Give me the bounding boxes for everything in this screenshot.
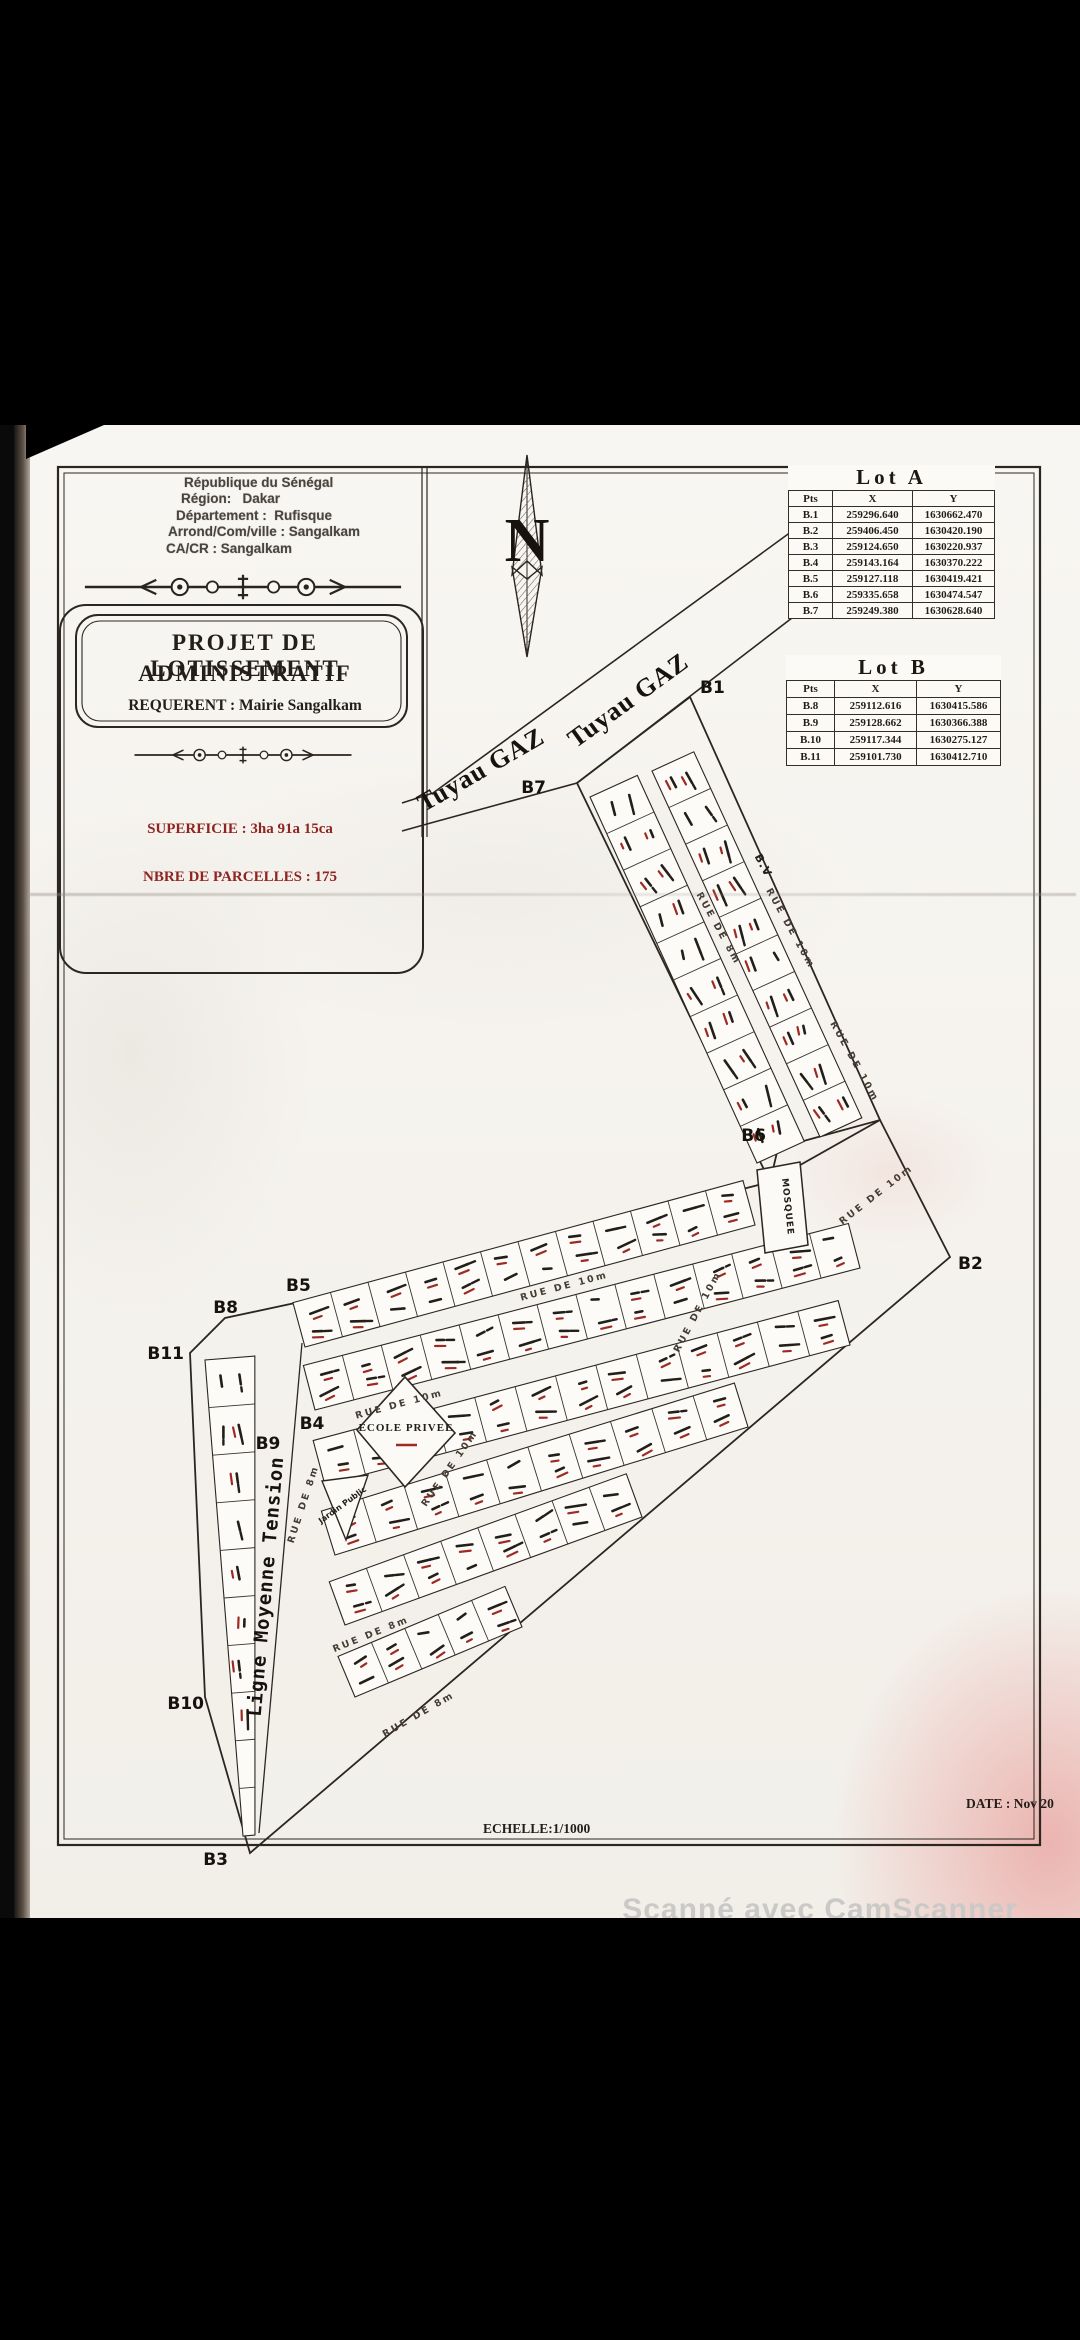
coordinate-cell: 1630220.937 <box>913 539 995 555</box>
coordinate-cell: 259124.650 <box>833 539 913 555</box>
gas-line-label-upper: Tuyau GAZ <box>562 647 694 754</box>
cacr-value: Sangalkam <box>221 541 292 556</box>
gas-line-label-lower: Tuyau GAZ <box>412 722 549 818</box>
table-row: B.6259335.6581630474.547 <box>789 587 995 603</box>
lot-a-header-pts: Pts <box>789 491 833 507</box>
coordinate-cell: 259117.344 <box>835 732 917 749</box>
admin-line-departement: Département : Rufisque <box>166 508 466 524</box>
letterbox-top <box>0 0 1080 425</box>
coordinate-cell: 1630275.127 <box>917 732 1001 749</box>
table-row: B.9259128.6621630366.388 <box>787 715 1001 732</box>
lot-b-header-pts: Pts <box>787 681 835 698</box>
coordinate-cell: B.4 <box>789 555 833 571</box>
lot-a-title: Lot A <box>788 465 995 490</box>
coordinate-cell: B.6 <box>789 587 833 603</box>
coordinate-cell: B.1 <box>789 507 833 523</box>
coordinate-cell: 259101.730 <box>835 749 917 766</box>
table-row: B.2259406.4501630420.190 <box>789 523 995 539</box>
table-row: B.1259296.6401630662.470 <box>789 507 995 523</box>
date-label: DATE : Nov 20 <box>966 1796 1054 1812</box>
admin-info-block: République du Sénégal Région: Dakar Dépa… <box>166 475 466 557</box>
region-label: Région: <box>181 491 231 506</box>
coordinate-cell: 1630412.710 <box>917 749 1001 766</box>
coordinate-cell: 259335.658 <box>833 587 913 603</box>
table-row: B.10259117.3441630275.127 <box>787 732 1001 749</box>
scale-label: ECHELLE:1/1000 <box>483 1821 590 1837</box>
boundary-label-b1: B1 <box>700 678 725 698</box>
coordinate-cell: 1630415.586 <box>917 698 1001 715</box>
bv-label: B.V <box>752 852 775 879</box>
ornament-divider-top <box>85 575 401 599</box>
coordinate-cell: 259296.640 <box>833 507 913 523</box>
boundary-label-b9: B9 <box>256 1434 281 1454</box>
letterbox-bottom <box>0 1918 1080 2340</box>
admin-line-country: République du Sénégal <box>166 475 466 491</box>
coordinate-cell: B.2 <box>789 523 833 539</box>
fold-crease <box>30 893 1076 896</box>
parcelles-count: NBRE DE PARCELLES : 175 <box>75 869 405 886</box>
ornament-divider-title <box>135 747 352 764</box>
table-row: B.8259112.6161630415.586 <box>787 698 1001 715</box>
boundary-label-b8: B8 <box>213 1298 238 1318</box>
north-letter: N <box>505 507 550 575</box>
coordinate-cell: 259406.450 <box>833 523 913 539</box>
lot-a-block: Lot A Pts X Y B.1259296.6401630662.470B.… <box>788 465 995 619</box>
street-label: RUE DE 10m <box>837 1163 915 1227</box>
project-requerent: REQUERENT : Mairie Sangalkam <box>80 697 410 715</box>
coordinate-cell: 1630370.222 <box>913 555 995 571</box>
school-label: ECOLE PRIVEE <box>359 1422 454 1434</box>
boundary-label-b4: B4 <box>300 1414 325 1434</box>
table-row: B.7259249.3801630628.640 <box>789 603 995 619</box>
boundary-label-b10: B10 <box>167 1694 204 1714</box>
street-label: RUE DE 8m <box>381 1690 457 1740</box>
lot-a-header-y: Y <box>913 491 995 507</box>
coordinate-cell: B.3 <box>789 539 833 555</box>
coordinate-cell: 1630628.640 <box>913 603 995 619</box>
admin-line-cacr: CA/CR : Sangalkam <box>166 541 466 557</box>
lot-b-header-y: Y <box>917 681 1001 698</box>
coordinate-cell: 259249.380 <box>833 603 913 619</box>
coordinate-cell: B.7 <box>789 603 833 619</box>
boundary-label-b7: B7 <box>521 778 546 798</box>
lot-b-title: Lot B <box>786 655 1001 680</box>
lot-a-header-x: X <box>833 491 913 507</box>
mosque-parcel: MOSQUEE <box>757 1162 808 1253</box>
coordinate-cell: B.8 <box>787 698 835 715</box>
boundary-label-b3: B3 <box>203 1850 228 1870</box>
north-arrow: N <box>505 455 550 657</box>
superficie-value: SUPERFICIE : 3ha 91a 15ca <box>75 821 405 838</box>
table-row: B.3259124.6501630220.937 <box>789 539 995 555</box>
coordinate-cell: 1630474.547 <box>913 587 995 603</box>
arrond-label: Arrond/Com/ville : <box>168 524 285 539</box>
table-row: B.4259143.1641630370.222 <box>789 555 995 571</box>
scanned-plan-photo: N Tuyau GAZ Tuyau GAZ MOSQUEE <box>0 425 1080 1918</box>
coordinate-cell: B.5 <box>789 571 833 587</box>
arrond-value: Sangalkam <box>289 524 360 539</box>
lot-b-block: Lot B Pts X Y B.8259112.6161630415.586B.… <box>786 655 1001 766</box>
admin-line-region: Région: Dakar <box>166 491 466 507</box>
boundary-label-b11: B11 <box>147 1344 184 1364</box>
lot-a-table: Pts X Y B.1259296.6401630662.470B.225940… <box>788 490 995 619</box>
table-row: B.11259101.7301630412.710 <box>787 749 1001 766</box>
coordinate-cell: 1630366.388 <box>917 715 1001 732</box>
coordinate-cell: B.9 <box>787 715 835 732</box>
coordinate-cell: 1630419.421 <box>913 571 995 587</box>
departement-label: Département : <box>176 508 267 523</box>
coordinate-cell: 259127.118 <box>833 571 913 587</box>
lot-b-header-x: X <box>835 681 917 698</box>
project-title-line2: ADMINISTRATIF <box>80 661 410 687</box>
departement-value: Rufisque <box>274 508 332 523</box>
coordinate-cell: 259112.616 <box>835 698 917 715</box>
street-label: RUE DE 8m <box>286 1464 322 1545</box>
coordinate-cell: 259128.662 <box>835 715 917 732</box>
phone-screenshot: N Tuyau GAZ Tuyau GAZ MOSQUEE <box>0 0 1080 2340</box>
boundary-label-b5: B5 <box>286 1276 311 1296</box>
admin-line-arrond: Arrond/Com/ville : Sangalkam <box>166 524 466 540</box>
region-value: Dakar <box>243 491 281 506</box>
boundary-label-b6: B6 <box>741 1126 766 1146</box>
coordinate-cell: 259143.164 <box>833 555 913 571</box>
coordinate-cell: B.11 <box>787 749 835 766</box>
lot-b-rows: B.8259112.6161630415.586B.9259128.662163… <box>787 698 1001 766</box>
cacr-label: CA/CR : <box>166 541 217 556</box>
lot-b-table: Pts X Y B.8259112.6161630415.586B.925912… <box>786 680 1001 766</box>
coordinate-cell: B.10 <box>787 732 835 749</box>
lot-a-rows: B.1259296.6401630662.470B.2259406.450163… <box>789 507 995 619</box>
table-row: B.5259127.1181630419.421 <box>789 571 995 587</box>
coordinate-cell: 1630420.190 <box>913 523 995 539</box>
coordinate-cell: 1630662.470 <box>913 507 995 523</box>
boundary-label-b2: B2 <box>958 1254 983 1274</box>
